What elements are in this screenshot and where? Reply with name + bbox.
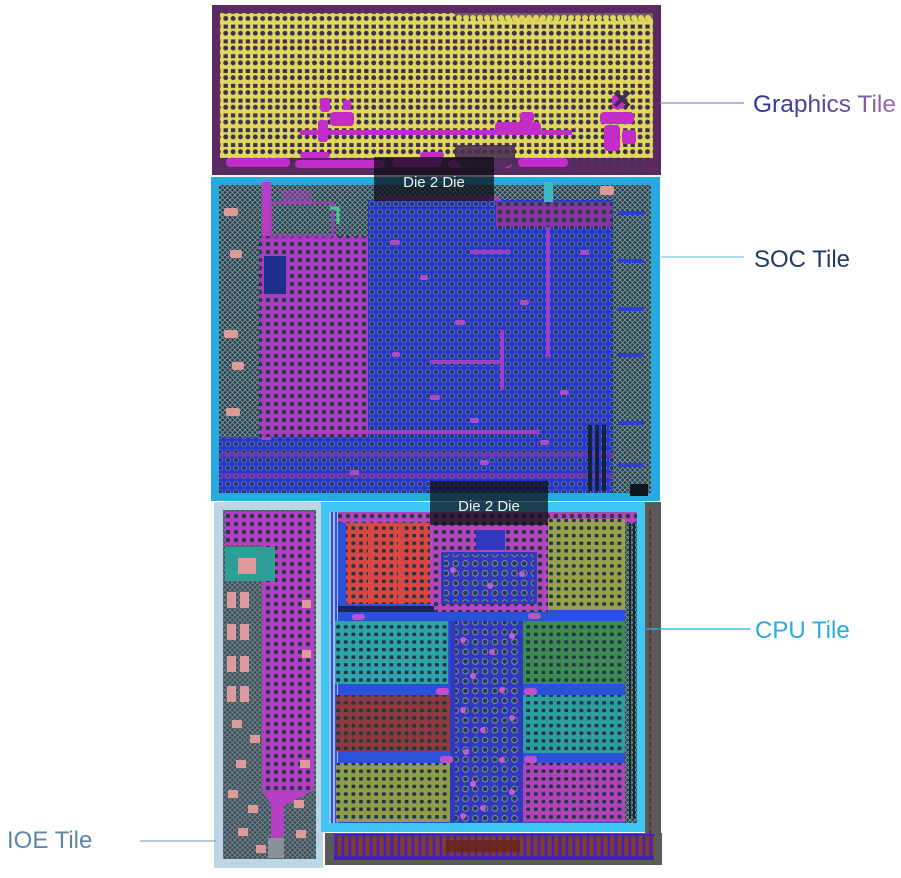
svg-text:Die 2 Die: Die 2 Die: [458, 498, 520, 515]
svg-text:Graphics Tile: Graphics Tile: [753, 91, 896, 118]
svg-text:SOC Tile: SOC Tile: [754, 246, 850, 273]
svg-text:Die 2 Die: Die 2 Die: [403, 174, 465, 191]
svg-text:CPU Tile: CPU Tile: [755, 617, 850, 644]
svg-text:IOE Tile: IOE Tile: [7, 827, 92, 854]
